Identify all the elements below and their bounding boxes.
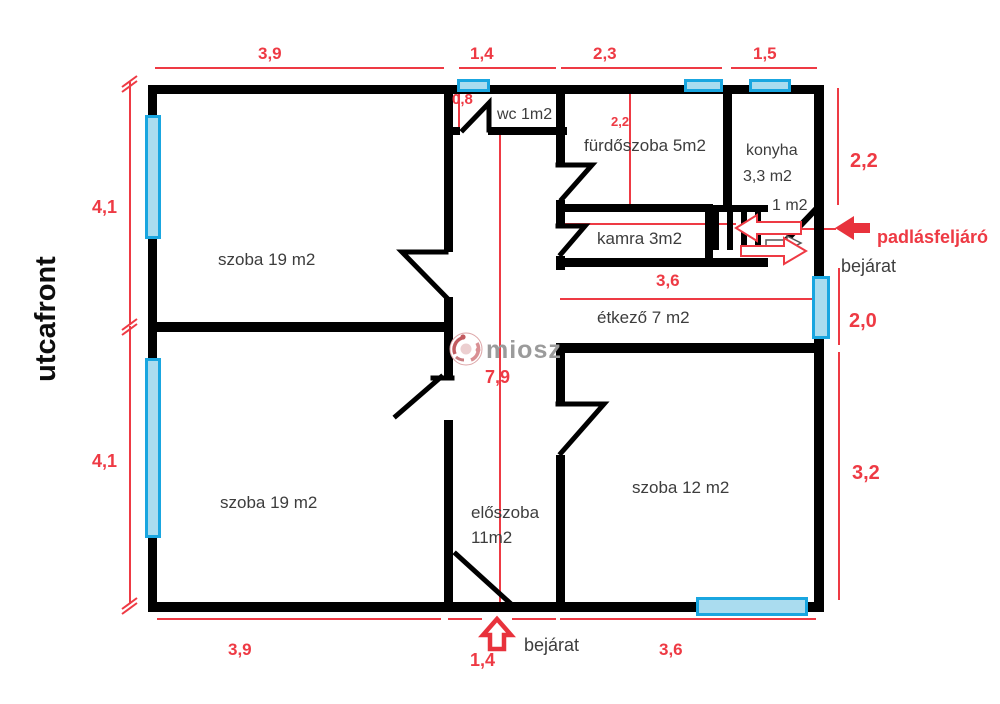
dim-top-szoba: 3,9 xyxy=(258,44,282,64)
dim-hall-length: 7,9 xyxy=(485,367,510,388)
dim-furdoszoba-depth: 2,2 xyxy=(611,114,629,129)
tick-left-bottom xyxy=(122,598,137,614)
floor-plan: miosz utcafront 3,9 1,4 2,3 1,5 4,1 4,1 … xyxy=(0,0,1000,704)
door-szoba12 xyxy=(558,404,604,453)
tick-left-middle xyxy=(122,319,137,335)
room-label-eloszoba: előszoba xyxy=(471,503,539,523)
room-label-etkezo: étkező 7 m2 xyxy=(597,308,690,328)
room-label-eloszoba-area: 11m2 xyxy=(471,528,512,548)
dim-right-szoba12: 3,2 xyxy=(852,462,880,485)
dim-ticks xyxy=(122,76,137,614)
tick-left-top xyxy=(122,76,137,92)
door-szoba-bottom xyxy=(396,377,452,416)
door-szoba-top xyxy=(402,252,446,297)
door-furdoszoba xyxy=(558,165,592,199)
door-entrance-bottom xyxy=(456,554,510,603)
room-label-kamra: kamra 3m2 xyxy=(597,229,682,249)
dim-top-konyha: 1,5 xyxy=(753,44,777,64)
dim-etkezo-width: 3,6 xyxy=(656,271,680,291)
room-label-furdoszoba: fürdőszoba 5m2 xyxy=(584,136,706,156)
street-side-label: utcafront xyxy=(30,238,68,400)
room-label-konyha-area: 3,3 m2 xyxy=(743,168,792,186)
room-label-szoba-bottom: szoba 19 m2 xyxy=(220,493,317,513)
room-label-konyha: konyha xyxy=(746,142,798,160)
dim-left-upper: 4,1 xyxy=(92,197,117,218)
room-label-szoba-top: szoba 19 m2 xyxy=(218,250,315,270)
attic-arrow-solid-icon xyxy=(835,216,870,240)
dim-right-konyha: 2,2 xyxy=(850,150,878,173)
dim-top-wc: 1,4 xyxy=(470,44,494,64)
dim-bottom-szoba: 3,9 xyxy=(228,640,252,660)
dim-bottom-szoba12: 3,6 xyxy=(659,640,683,660)
label-entrance-bottom: bejárat xyxy=(524,635,579,656)
label-attic-access: padlásfeljáró xyxy=(877,227,988,248)
room-label-szoba12: szoba 12 m2 xyxy=(632,478,729,498)
dim-bottom-entrance: 1,4 xyxy=(470,650,495,671)
door-kamra xyxy=(558,226,585,254)
dim-top-furdoszoba: 2,3 xyxy=(593,44,617,64)
dim-left-lower: 4,1 xyxy=(92,451,117,472)
dim-right-entrance: 2,0 xyxy=(849,310,877,333)
label-entrance-side: bejárat xyxy=(841,256,896,277)
miosz-logo-icon xyxy=(448,331,484,367)
watermark-text: miosz xyxy=(486,336,562,365)
room-label-wc: wc 1m2 xyxy=(497,106,552,124)
dim-wc-window: 0,8 xyxy=(452,91,473,108)
room-label-attic-space: 1 m2 xyxy=(772,197,808,215)
entrance-up-arrow-icon xyxy=(483,619,511,649)
